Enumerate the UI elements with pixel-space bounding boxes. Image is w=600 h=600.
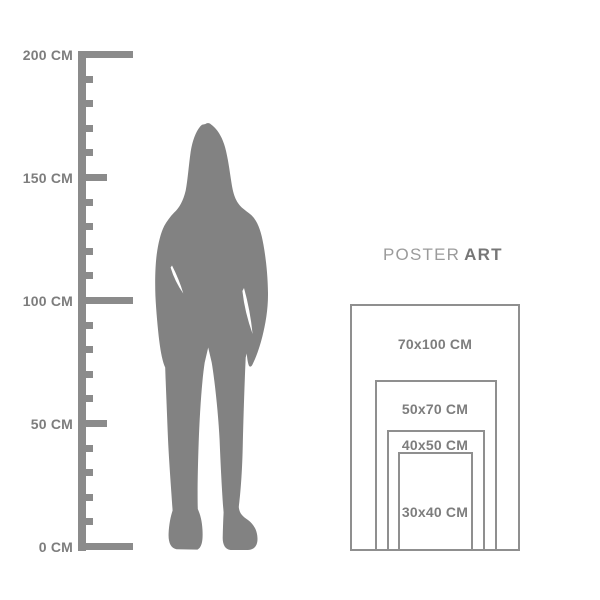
ruler-tick (78, 100, 93, 107)
ruler-tick (78, 395, 93, 402)
poster-label-50x70: 50x70 CM (351, 400, 519, 418)
ruler-tick (78, 518, 93, 525)
ruler-tick (78, 469, 93, 476)
ruler-label-150cm: 150 CM (11, 169, 73, 187)
ruler-tick (78, 346, 93, 353)
poster-rect-30x40 (398, 452, 473, 551)
ruler-tick (78, 125, 93, 132)
ruler-tick-50cm (78, 420, 107, 427)
silhouette-body (155, 123, 268, 550)
ruler-label-100cm: 100 CM (11, 292, 73, 310)
brand-title: POSTERART (383, 245, 503, 265)
ruler-tick (78, 445, 93, 452)
ruler-tick-0cm (78, 543, 133, 550)
ruler-tick (78, 248, 93, 255)
ruler-tick-100cm (78, 297, 133, 304)
ruler-tick (78, 149, 93, 156)
woman-silhouette (150, 120, 272, 552)
ruler-tick-150cm (78, 174, 107, 181)
brand-name-regular: POSTER (383, 245, 460, 264)
ruler-tick-200cm (78, 51, 133, 58)
poster-label-70x100: 70x100 CM (351, 335, 519, 353)
poster-label-40x50: 40x50 CM (351, 436, 519, 454)
poster-size-guide: 200 CM 150 CM 100 CM 50 CM 0 CM POSTERAR… (0, 0, 600, 600)
poster-label-30x40: 30x40 CM (351, 503, 519, 521)
ruler-label-200cm: 200 CM (11, 46, 73, 64)
ruler-tick (78, 272, 93, 279)
ruler-label-50cm: 50 CM (11, 415, 73, 433)
ruler-tick (78, 199, 93, 206)
ruler-tick (78, 322, 93, 329)
ruler-tick (78, 223, 93, 230)
ruler-label-0cm: 0 CM (11, 538, 73, 556)
ruler-tick (78, 494, 93, 501)
brand-name-bold: ART (464, 245, 503, 264)
ruler-tick (78, 371, 93, 378)
ruler-tick (78, 76, 93, 83)
